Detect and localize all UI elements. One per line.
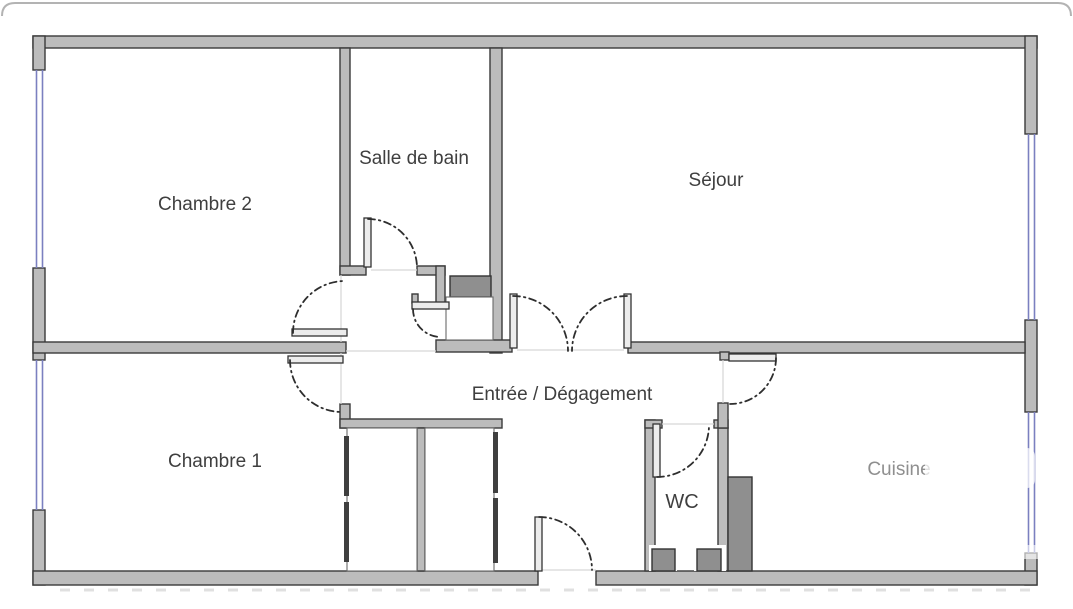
wall-bathroom-bottom-left: [340, 266, 366, 275]
duct-bathroom: [450, 276, 491, 297]
cupboard-bathroom: [446, 297, 493, 340]
room-label-chambre2: Chambre 2: [158, 194, 252, 215]
room-label-cuisine: Cuisine: [867, 459, 930, 480]
door-cuisine-leaf: [729, 354, 776, 361]
door-cupboard-leaf: [412, 302, 449, 309]
room-label-chambre1: Chambre 1: [168, 451, 262, 472]
door-chambre1: [288, 356, 343, 412]
door-sejour-double: [510, 294, 631, 351]
closet-right: [425, 428, 494, 571]
door-chambre2-arc: [293, 281, 345, 333]
wall-right-segment-top: [1025, 36, 1037, 134]
door-salle-de-bain: [364, 218, 417, 268]
wall-bottom-right: [596, 571, 1037, 585]
door-entrance: [535, 517, 592, 571]
door-salle-de-bain-leaf: [364, 218, 371, 267]
wall-left-segment-top: [33, 36, 45, 70]
door-cuisine: [729, 354, 776, 404]
interior-walls: [33, 48, 1025, 571]
room-label-wc: WC: [665, 491, 698, 513]
door-cupboard-arc: [413, 309, 441, 337]
door-wc-leaf: [653, 424, 660, 477]
door-wc-arc: [657, 425, 709, 477]
closet-left-door-panel-2: [344, 502, 349, 562]
door-sejour-left-leaf: [510, 294, 517, 348]
door-entrance-arc: [539, 517, 592, 570]
floor-plan-drawing: Chambre 2 Salle de bain Séjour Entrée / …: [0, 0, 1073, 609]
page-top-border: [2, 3, 1071, 16]
door-chambre1-arc: [290, 360, 342, 412]
door-sejour-right-leaf: [624, 294, 631, 348]
room-labels: Chambre 2 Salle de bain Séjour Entrée / …: [158, 148, 931, 513]
wall-right-segment-mid: [1025, 320, 1037, 412]
wall-under-cupboard: [436, 340, 512, 352]
wall-bathroom-connector: [436, 266, 445, 306]
watermark-blob: [925, 448, 1035, 488]
wall-cuisine-door-jamb: [718, 403, 728, 428]
door-wc: [653, 424, 709, 477]
duct-cuisine: [728, 477, 752, 571]
duct-wc-right: [697, 549, 721, 571]
window-sejour: [1029, 134, 1035, 320]
room-label-salle-de-bain: Salle de bain: [359, 148, 469, 169]
door-cuisine-arc: [730, 358, 776, 404]
door-chambre2: [292, 281, 347, 336]
outer-walls: [33, 36, 1037, 585]
wall-top: [33, 36, 1037, 48]
door-chambre2-leaf: [292, 329, 347, 336]
wall-closet-top: [340, 419, 502, 428]
closet-left-door-panel-1: [344, 436, 349, 496]
wall-closet-divider: [417, 428, 425, 571]
room-label-sejour: Séjour: [689, 170, 745, 191]
closet-left: [347, 428, 417, 571]
wall-cuisine-door-tick: [720, 352, 729, 360]
door-entrance-leaf: [535, 517, 542, 571]
door-sejour-right-arc: [572, 296, 627, 351]
window-chambre1: [37, 360, 43, 510]
floor-plan-page: Chambre 2 Salle de bain Séjour Entrée / …: [0, 0, 1073, 609]
room-label-entree-degagement: Entrée / Dégagement: [472, 384, 653, 405]
watermark-blob-corner: [1022, 545, 1040, 559]
door-chambre1-leaf: [288, 356, 343, 363]
door-salle-de-bain-arc: [368, 219, 417, 268]
window-chambre2: [37, 70, 43, 268]
wall-middle-left: [33, 342, 346, 353]
wall-bathroom-left: [340, 48, 350, 275]
wall-bottom-left: [33, 571, 538, 585]
door-cupboard: [412, 302, 449, 337]
closet-right-door-panel-1: [493, 432, 498, 493]
wall-middle-right: [628, 342, 1025, 353]
windows: [37, 70, 1035, 553]
door-sejour-left-arc: [513, 296, 568, 351]
closet-right-door-panel-2: [493, 498, 498, 563]
duct-wc-left: [652, 549, 675, 571]
